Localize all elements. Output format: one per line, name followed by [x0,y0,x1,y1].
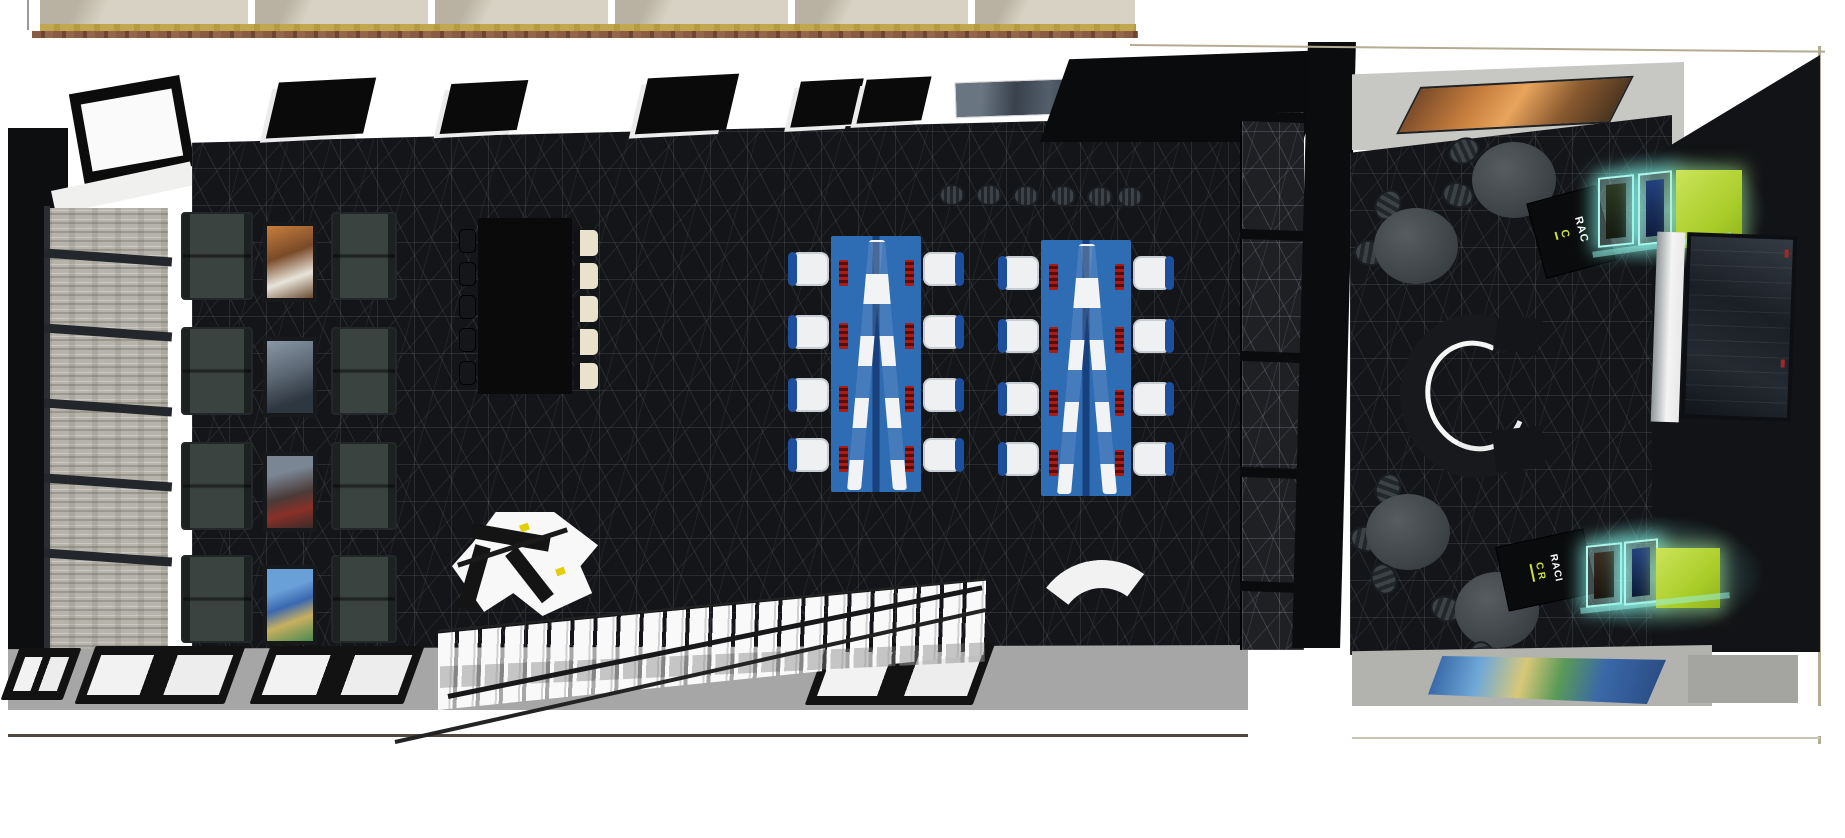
lounge-wall-bottom-white [1352,706,1822,736]
lounge-sofa [181,442,253,530]
round-table [1374,208,1458,284]
display-case-glass [87,655,234,695]
keyboard [1115,327,1124,353]
keyboard [1049,264,1058,290]
keyboard [905,260,914,286]
keyboard [1049,390,1058,416]
display-case-glass [262,655,413,695]
lounge-frame-bottom [1352,737,1820,739]
booth-artwork [263,337,317,417]
skylight [790,78,864,127]
keyboard [905,446,914,472]
gaming-chair [791,252,829,286]
bar-stool [976,184,1002,206]
console-lounge: RAC C RACI C R [1130,0,1845,838]
conference-chair-cream [574,329,598,355]
gaming-chair [791,315,829,349]
curved-desk-end [1492,426,1546,473]
gaming-chair [923,315,961,349]
conference-chair-cream [574,230,598,256]
game-box-art [1632,547,1650,597]
keyboard [1049,450,1058,476]
bar-stool [1087,186,1113,208]
display-case [805,643,996,705]
curved-desk [1400,314,1552,478]
gaming-chair [791,378,829,412]
conference-chair-dark [459,295,476,319]
gaming-chair [923,252,961,286]
gaming-chair [1001,319,1039,353]
tv-screen-detail [1685,236,1793,417]
lounge-sofa [331,442,397,530]
lounge-sofa [181,555,253,643]
stone-shelf-wall [46,208,168,656]
keyboard [839,386,848,412]
sign-accent-text: C [1554,228,1572,240]
gaming-chair [1001,382,1039,416]
booth-artwork [263,222,317,302]
lounge-frame-top [1130,44,1825,53]
keyboard [839,260,848,286]
gaming-chair [1001,442,1039,476]
main-wall-bottom [8,710,1248,742]
keyboard [1115,264,1124,290]
wall-tv-screen [1685,236,1793,417]
conference-table [478,218,572,394]
round-table [1366,494,1450,570]
conference-chair-cream [574,263,598,289]
lounge-sofa [331,555,397,643]
display-case-glass [817,652,983,696]
display-shelf-glass [1624,538,1658,606]
sign-white-text: RACI [1547,553,1564,583]
conference-chair-dark [459,229,476,253]
conference-chair-cream [574,296,598,322]
display-case [74,646,245,704]
game-box-art [1646,179,1664,237]
tv-red-indicator [1784,250,1788,258]
lounge-sofa [331,212,397,300]
keyboard [1115,390,1124,416]
reception-desk [452,512,598,616]
bar-stool [939,184,965,206]
round-table-set [1356,192,1486,302]
keyboard [905,386,914,412]
keyboard [839,323,848,349]
main-bottom-edge-line [8,734,1248,737]
window-glass [81,89,183,172]
gaming-desk-group-left [785,230,975,500]
skylight [635,74,739,135]
wall-tv [1681,232,1797,422]
sign-white-text: RAC [1572,215,1591,244]
keyboard [1049,327,1058,353]
display-shelf-glass [1598,174,1634,248]
lounge-sofa [331,327,397,415]
tv-red-indicator [1781,359,1785,367]
bar-stool [1013,185,1039,207]
booth-artwork [263,452,317,532]
keyboard [1115,450,1124,476]
keyboard [905,323,914,349]
skylight [266,78,376,139]
curved-desk-end [1493,312,1543,355]
shelf-edge [44,206,50,656]
booth-artwork [263,565,317,645]
gaming-chair [923,438,961,472]
game-box-art [1594,551,1614,599]
keyboard [839,446,848,472]
lounge-sofa [181,327,253,415]
gaming-chair [1001,256,1039,290]
bar-stool [1050,185,1076,207]
conference-chair-dark [459,262,476,286]
skylight [856,76,931,123]
gaming-chair [923,378,961,412]
floorplan-canvas: RAC C RACI C R [0,0,1845,838]
conference-chair-dark [459,361,476,385]
gaming-chair [791,438,829,472]
sign-accent-text: C R [1529,562,1547,582]
display-case-glass [13,657,69,691]
conference-chair-cream [574,363,598,389]
display-case [249,646,424,704]
conference-chair-dark [459,328,476,352]
skylight [440,80,529,134]
game-box-art [1606,183,1626,239]
lounge-sofa [181,212,253,300]
display-shelf-glass [1586,542,1622,608]
lounge-floor-bottom-right [1688,655,1798,703]
